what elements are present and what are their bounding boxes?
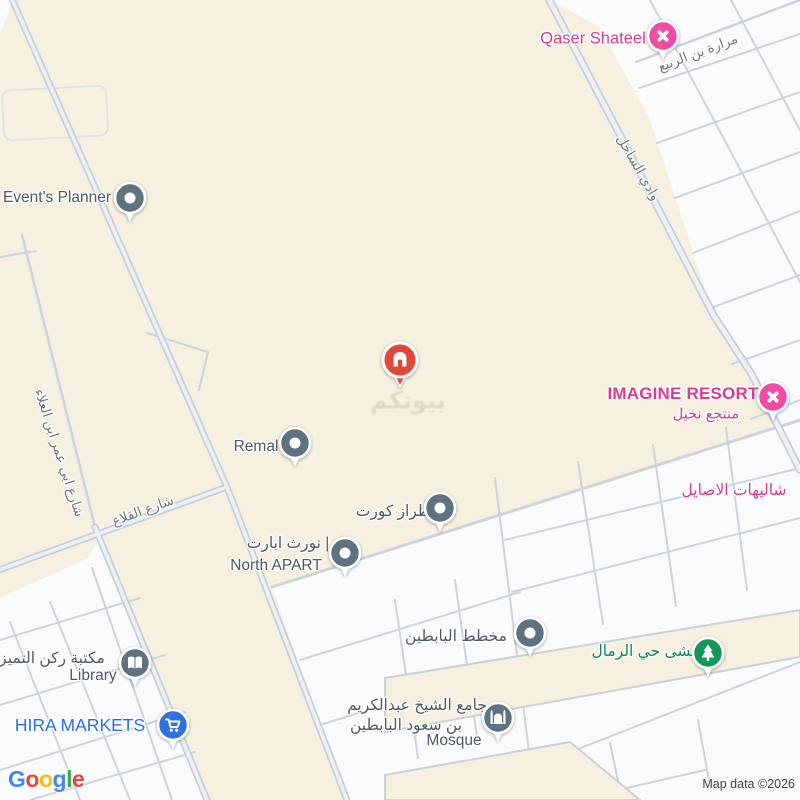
home-marker-pin[interactable] xyxy=(377,340,423,390)
poi-label-shalihat[interactable]: شاليهات الاصايل xyxy=(682,483,787,499)
poi-label-mokhatat[interactable]: مخطط البابطين xyxy=(405,629,507,645)
poi-label-remal[interactable]: Remal xyxy=(234,439,279,455)
poi-label-north-apart-ar[interactable]: نورث ابارت | xyxy=(247,536,329,552)
imagine-resort-pin[interactable] xyxy=(754,378,792,424)
google-logo[interactable]: Google xyxy=(8,766,84,793)
poi-label-tiraz-court[interactable]: طراز كورت xyxy=(356,504,430,520)
poi-label-events-planner[interactable]: Event's Planner xyxy=(3,190,111,206)
poi-label-library-ar[interactable]: مكتبة ركن التميز xyxy=(0,651,105,667)
poi-label-mosque-ar1[interactable]: جامع الشيخ عبدالكريم xyxy=(347,698,487,714)
map-attribution: Map data ©2026 xyxy=(702,777,795,791)
remal-pin[interactable] xyxy=(276,424,314,470)
tiraz-court-pin[interactable] xyxy=(421,489,459,535)
mokhatat-pin[interactable] xyxy=(511,614,549,660)
poi-label-mosque-en[interactable]: Mosque xyxy=(426,733,481,749)
poi-label-hira-markets[interactable]: HIRA MARKETS xyxy=(15,716,145,734)
poi-label-library-en[interactable]: Library xyxy=(69,668,116,684)
home-icon xyxy=(377,340,423,390)
shopping-cart-icon xyxy=(154,706,192,752)
poi-dot-icon xyxy=(421,489,459,535)
poi-dot-icon xyxy=(511,614,549,660)
book-icon xyxy=(116,644,154,690)
poi-label-qaser-shateel[interactable]: Qaser Shateel xyxy=(540,30,645,47)
poi-label-imagine-resort[interactable]: IMAGINE RESORT xyxy=(607,385,758,403)
north-apart-pin[interactable] xyxy=(326,534,364,580)
map-watermark: بيوتكم xyxy=(370,387,446,416)
poi-dot-icon xyxy=(111,179,149,225)
poi-dot-icon xyxy=(276,424,314,470)
beauty-tools-icon xyxy=(644,17,682,63)
poi-sublabel-imagine-resort[interactable]: منتجع نخيل xyxy=(673,407,739,422)
poi-label-north-apart-en[interactable]: North APART xyxy=(230,558,322,574)
beauty-tools-icon xyxy=(754,378,792,424)
hira-markets-pin[interactable] xyxy=(154,706,192,752)
events-planner-pin[interactable] xyxy=(111,179,149,225)
library-pin[interactable] xyxy=(116,644,154,690)
tree-icon xyxy=(689,634,727,680)
poi-dot-icon xyxy=(326,534,364,580)
mosque-icon xyxy=(479,699,517,745)
qaser-shateel-pin[interactable] xyxy=(644,17,682,63)
mamsha-park-pin[interactable] xyxy=(689,634,727,680)
mosque-pin[interactable] xyxy=(479,699,517,745)
